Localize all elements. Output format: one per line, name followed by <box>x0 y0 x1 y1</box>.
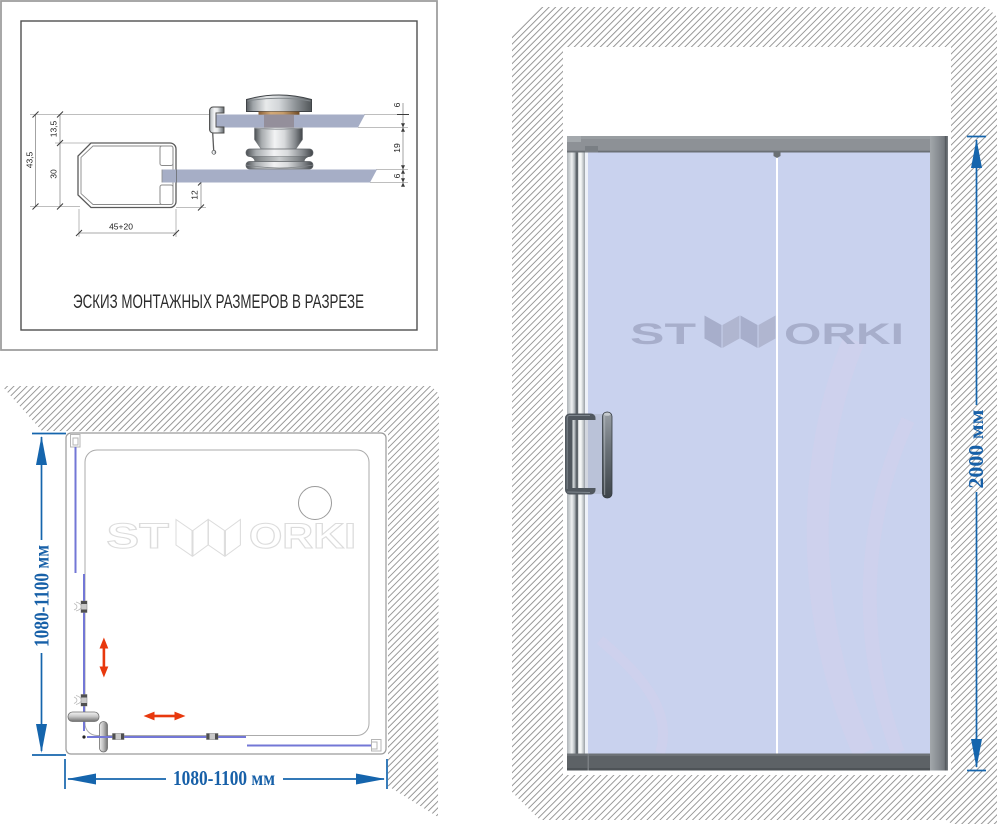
svg-text:19: 19 <box>392 143 402 153</box>
svg-text:6: 6 <box>392 173 402 178</box>
svg-text:6: 6 <box>392 102 402 107</box>
svg-text:2000 мм: 2000 мм <box>964 410 988 489</box>
svg-text:ST: ST <box>630 318 696 351</box>
svg-text:43,5: 43,5 <box>25 151 35 168</box>
svg-text:ЭСКИЗ МОНТАЖНЫХ РАЗМЕРОВ В РАЗ: ЭСКИЗ МОНТАЖНЫХ РАЗМЕРОВ В РАЗРЕЗЕ <box>73 292 364 313</box>
svg-text:1080-1100 мм: 1080-1100 мм <box>173 766 275 790</box>
svg-text:ORKI: ORKI <box>249 516 356 556</box>
svg-text:45+20: 45+20 <box>109 222 133 232</box>
svg-text:13,5: 13,5 <box>49 120 59 137</box>
svg-text:12: 12 <box>190 190 200 200</box>
svg-text:1080-1100 мм: 1080-1100 мм <box>30 545 54 647</box>
svg-text:ORKI: ORKI <box>784 318 904 351</box>
svg-text:30: 30 <box>49 169 59 179</box>
svg-text:ST: ST <box>107 516 170 556</box>
